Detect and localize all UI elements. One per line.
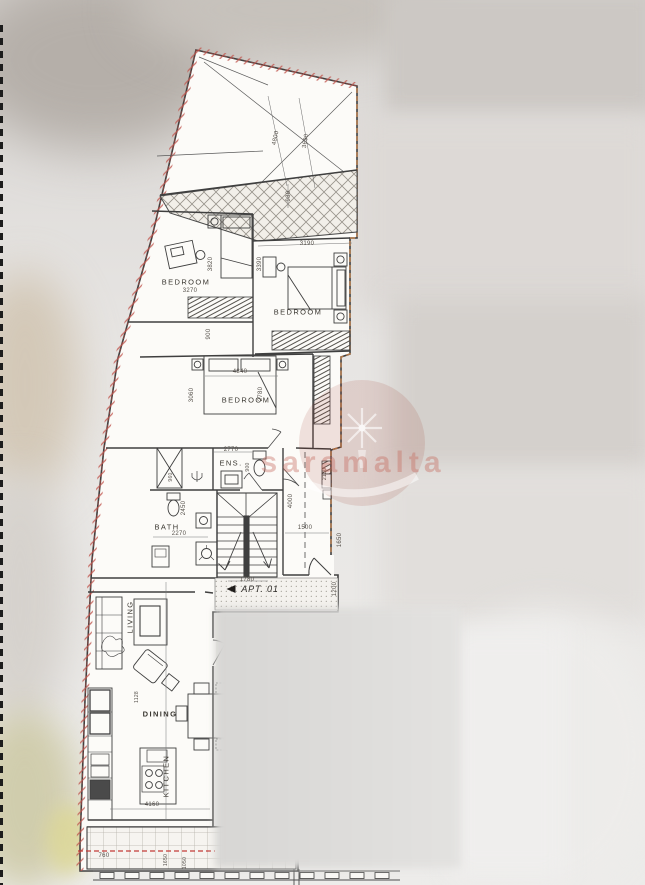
dim-900-bedroom1: 900 [206, 329, 212, 340]
room-label-dining: DINING [143, 710, 178, 719]
windmill-icon [299, 380, 425, 506]
dim-4000: 4000 [288, 494, 294, 509]
dim-960: 960 [168, 472, 174, 481]
room-label-bedroom-1: BEDROOM [162, 278, 211, 287]
watermark-text: saramalta [260, 446, 445, 480]
dim-2780: 2780 [258, 387, 264, 402]
room-label-bedroom-2: BEDROOM [274, 308, 323, 317]
dim-3820: 3820 [208, 257, 214, 272]
street-fence [93, 869, 400, 885]
dim-1200: 1200 [332, 582, 338, 597]
dim-3190: 3190 [300, 241, 315, 247]
dim-4160: 4160 [145, 802, 160, 808]
dim-760: 760 [99, 853, 110, 859]
dim-2770: 2770 [224, 447, 239, 453]
apartment-arrow-icon [227, 585, 236, 593]
dim-3060: 3060 [189, 388, 195, 403]
dim-1500: 1500 [298, 525, 313, 531]
dim-4840: 4840 [233, 369, 248, 375]
dim-1650-landing: 1650 [337, 533, 343, 548]
room-label-living: LIVING [126, 601, 135, 634]
dim-1050: 1050 [182, 857, 188, 869]
dim-3270: 3270 [183, 288, 198, 294]
room-label-kitchen: KITCHEN [162, 755, 171, 798]
adjacent-plan-dashed-line [0, 25, 3, 885]
floorplan-screenshot: BEDROOM BEDROOM BEDROOM ENS. BATH LIVING… [0, 0, 645, 885]
dim-900-ensuite: 900 [245, 462, 251, 471]
dim-1128: 1128 [134, 691, 140, 703]
watermark-logo-circle [299, 380, 425, 506]
common-landing-stipple [215, 578, 338, 610]
room-label-ensuite: ENS. [219, 459, 242, 468]
dim-980: 980 [286, 191, 292, 202]
dim-2270: 2270 [172, 531, 187, 537]
dim-2450: 2450 [181, 501, 187, 516]
dim-1650-terrace: 1650 [163, 854, 169, 866]
privacy-blur-patch [215, 608, 461, 868]
apartment-label: APT. 01 [241, 584, 278, 594]
dim-3390: 3390 [257, 257, 263, 272]
dim-1780: 1780 [240, 577, 255, 583]
